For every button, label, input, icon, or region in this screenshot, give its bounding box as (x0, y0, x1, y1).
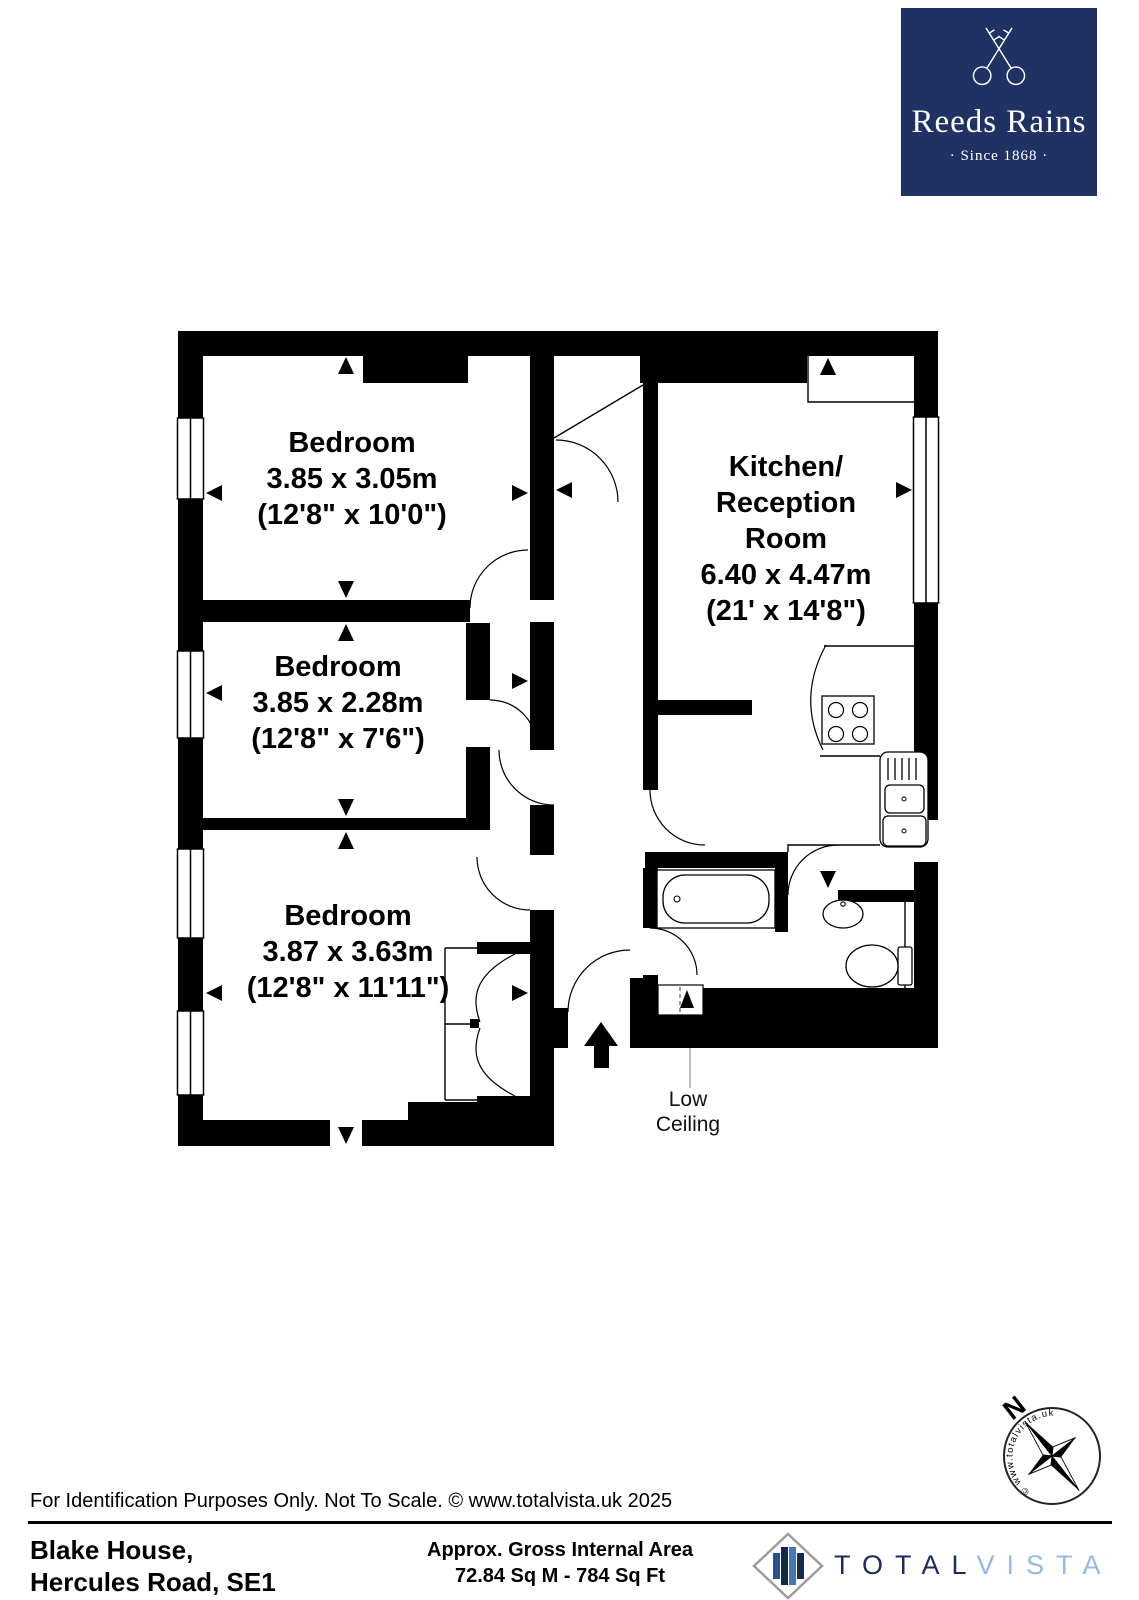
totalvista-diamond-icon (752, 1532, 824, 1600)
low-ceiling-cupboard (658, 985, 703, 1015)
dim-arrow-up-icon (338, 832, 354, 849)
window-kitchen (914, 417, 939, 603)
disclaimer-text: For Identification Purposes Only. Not To… (30, 1490, 672, 1513)
room-label-kitchen-line1: Kitchen/ (729, 451, 843, 483)
address-line2: Hercules Road, SE1 (30, 1566, 276, 1598)
room-label-bedroom2-name: Bedroom (274, 651, 401, 683)
fixtures (657, 645, 928, 987)
totalvista-total: TOTAL (834, 1550, 977, 1580)
dim-arrow-right-icon (512, 673, 528, 689)
door-arc-entrance (568, 950, 630, 1012)
dim-arrow-right-icon (512, 985, 528, 1001)
splayed-opening-line (554, 385, 643, 438)
dim-arrow-right-icon (896, 482, 912, 498)
agency-tagline: · Since 1868 · (901, 148, 1097, 165)
dim-arrow-down-icon (338, 799, 354, 816)
dim-arrow-left-icon (206, 485, 222, 501)
room-label-bedroom2-metric: 3.85 x 2.28m (253, 687, 424, 719)
compass-rose-icon: © www.totalvista.uk N (988, 1392, 1116, 1520)
dim-arrow-left-icon (556, 482, 572, 498)
floorplan-page: Bedroom 3.85 x 3.05m (12'8" x 10'0") Bed… (0, 0, 1139, 1600)
window-bedroom3-a (178, 849, 204, 938)
window-bedroom1 (178, 418, 204, 499)
bathtub-icon (657, 870, 775, 928)
room-label-bedroom1-metric: 3.85 x 3.05m (267, 463, 438, 495)
totalvista-wordmark: TOTALVISTA (834, 1550, 1113, 1581)
room-label-kitchen-line2: Reception (716, 487, 856, 519)
door-arc-lobby (499, 750, 554, 805)
wardrobe-door-arc-upper (476, 954, 515, 1022)
entrance-arrow-icon (584, 1022, 618, 1068)
agency-logo: Reeds Rains · Since 1868 · (901, 8, 1097, 196)
dim-arrow-down-icon (820, 871, 836, 888)
room-label-bedroom3-metric: 3.87 x 3.63m (263, 936, 434, 968)
door-arc-wc (788, 845, 838, 895)
room-label-bedroom1-imperial: (12'8" x 10'0") (257, 499, 447, 531)
door-arc-bedroom3 (477, 857, 530, 910)
area-value: 72.84 Sq M - 784 Sq Ft (360, 1563, 760, 1589)
dim-arrow-up-icon (820, 358, 836, 375)
door-arc-bathroom (650, 928, 697, 975)
counter-edge-line (788, 845, 880, 852)
property-address: Blake House, Hercules Road, SE1 (30, 1534, 276, 1598)
dim-arrow-right-icon (512, 485, 528, 501)
room-label-bedroom2-imperial: (12'8" x 7'6") (251, 723, 425, 755)
dim-arrow-left-icon (206, 685, 222, 701)
gross-internal-area: Approx. Gross Internal Area 72.84 Sq M -… (360, 1537, 760, 1589)
totalvista-vista: VISTA (977, 1550, 1113, 1580)
kitchen-recess-outline (808, 356, 914, 402)
door-arc-corridor (650, 790, 705, 845)
room-label-kitchen-imperial: (21' x 14'8") (706, 595, 866, 627)
footer-divider (28, 1521, 1112, 1524)
hob-icon (822, 696, 874, 744)
dim-arrow-up-icon (338, 624, 354, 641)
wardrobe-door-arc-lower (476, 1028, 515, 1096)
dim-arrow-up-icon (338, 357, 354, 374)
toilet-icon (846, 945, 912, 987)
low-ceiling-label-line2: Ceiling (656, 1113, 720, 1136)
room-label-kitchen-line3: Room (745, 523, 827, 555)
low-ceiling-label-line1: Low (669, 1088, 708, 1111)
agency-name: Reeds Rains (901, 104, 1097, 141)
sink-icon (880, 752, 928, 847)
door-arc-bedroom1 (470, 550, 528, 608)
window-bedroom2 (178, 651, 204, 738)
window-bedroom3-b (178, 1011, 204, 1095)
address-line1: Blake House, (30, 1534, 276, 1566)
dim-arrow-left-icon (206, 985, 222, 1001)
crossed-keys-icon (960, 18, 1038, 100)
washbasin-icon (823, 900, 863, 928)
floorplan-drawing: Bedroom 3.85 x 3.05m (12'8" x 10'0") Bed… (0, 0, 1139, 1600)
dim-arrow-down-icon (338, 581, 354, 598)
room-label-bedroom3-name: Bedroom (284, 900, 411, 932)
room-label-bedroom3-imperial: (12'8" x 11'11") (247, 972, 450, 1004)
room-label-bedroom1-name: Bedroom (288, 427, 415, 459)
area-label: Approx. Gross Internal Area (360, 1537, 760, 1563)
room-label-kitchen-metric: 6.40 x 4.47m (701, 559, 872, 591)
door-arc-bedroom2 (490, 700, 537, 747)
wardrobe-pivot (470, 1019, 479, 1028)
